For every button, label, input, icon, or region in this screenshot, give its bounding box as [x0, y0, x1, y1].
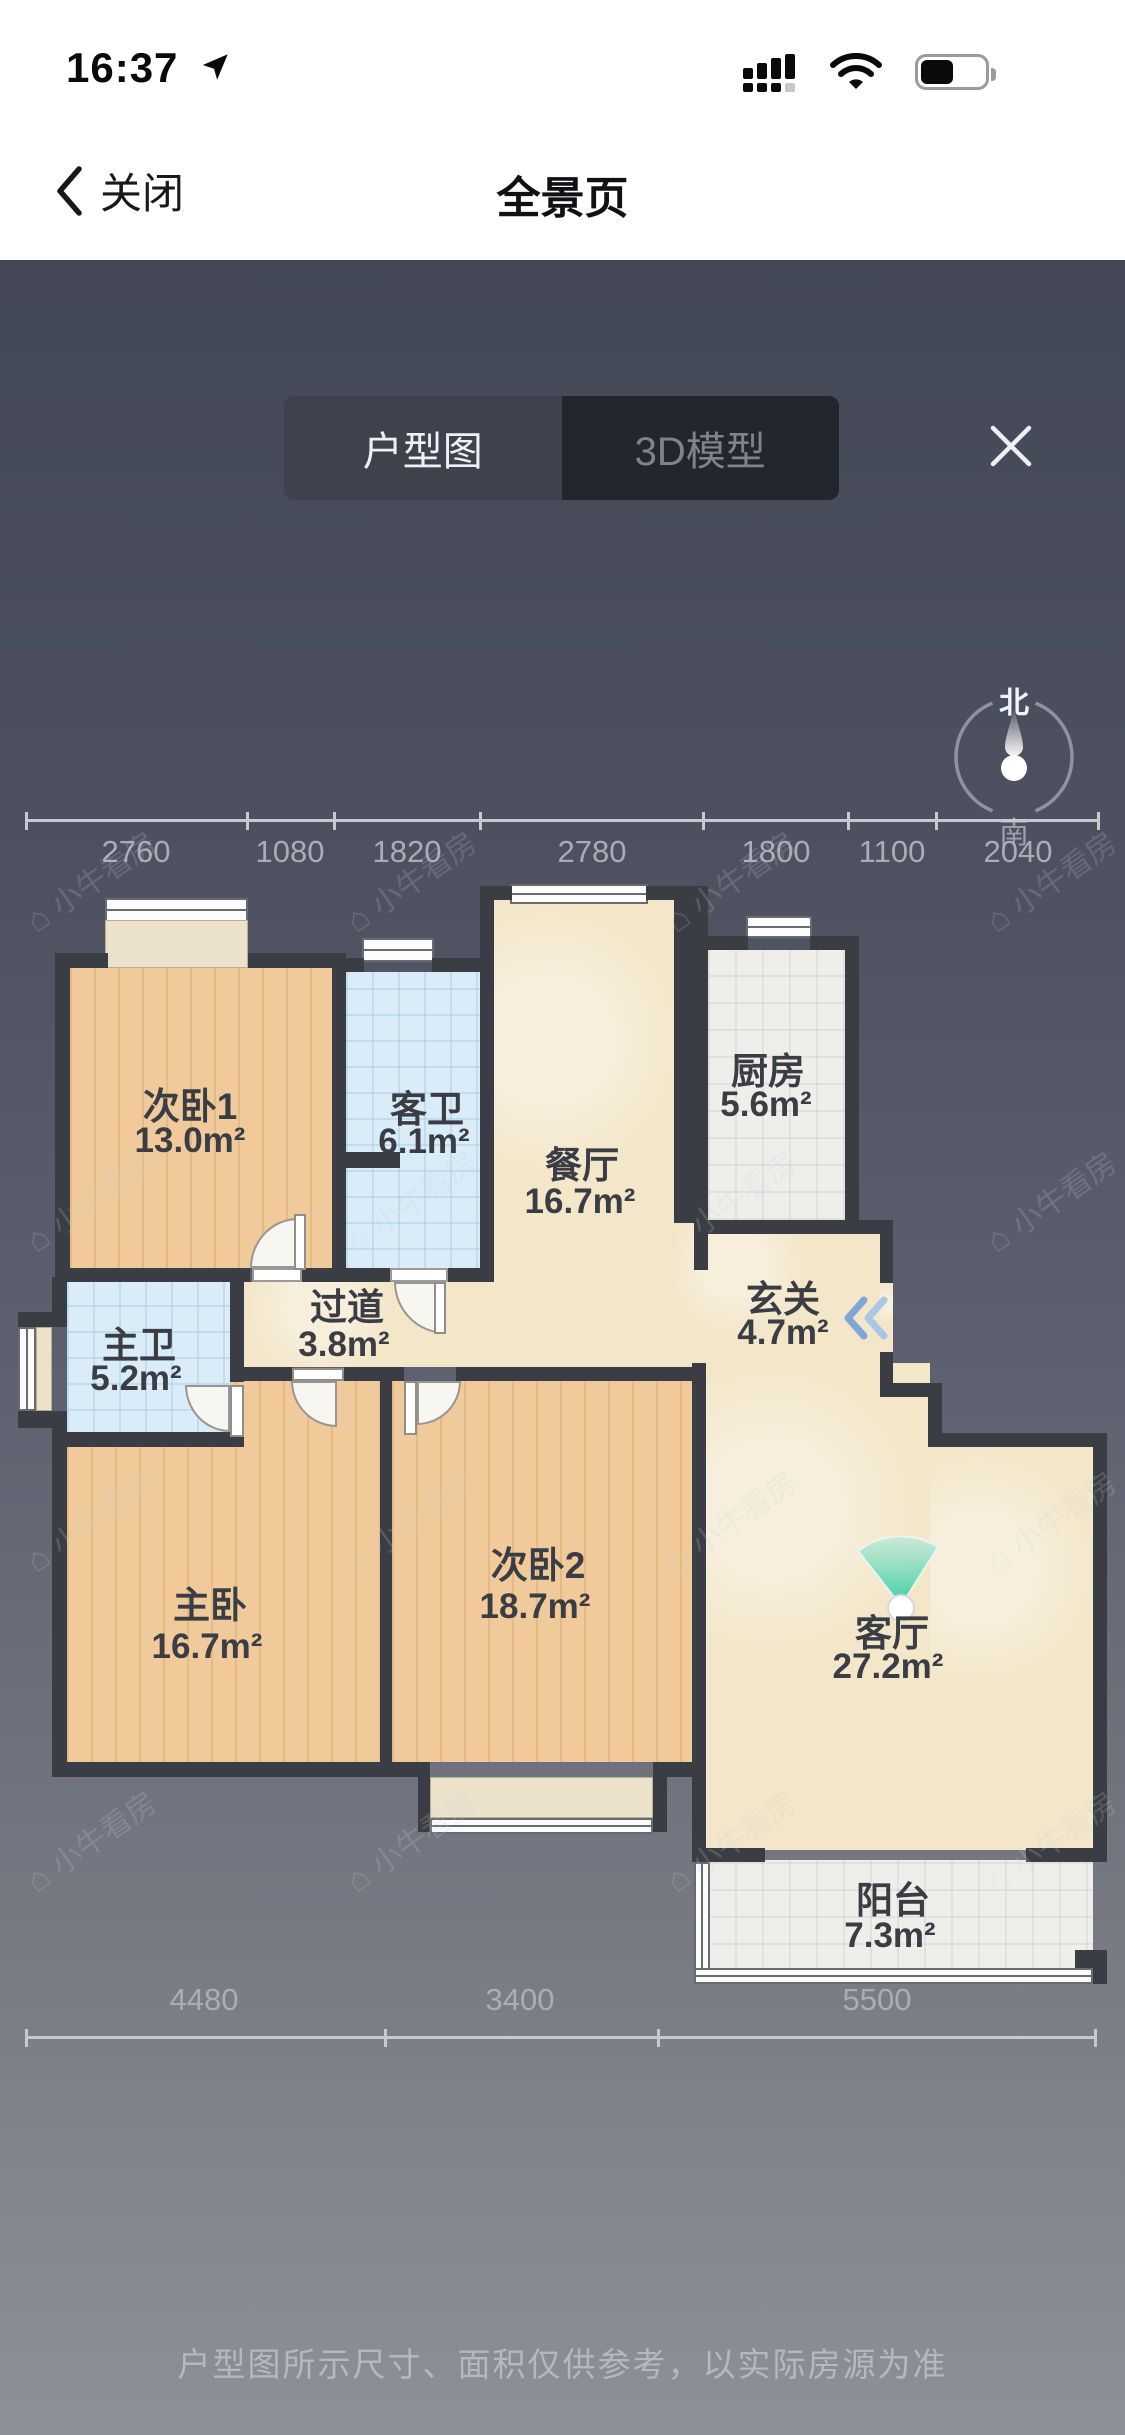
- room-living-floor: [930, 1447, 1093, 1850]
- clock: 16:37: [66, 44, 178, 92]
- wall: [494, 886, 512, 900]
- wall: [928, 1433, 1107, 1447]
- room-dining-floor: [494, 900, 674, 1367]
- wall: [694, 1848, 765, 1862]
- entry-direction-icon: [844, 1296, 892, 1345]
- door-leaf: [230, 1385, 244, 1437]
- room-area-guest-bath: 6.1m²: [378, 1122, 469, 1162]
- wall: [55, 953, 108, 968]
- room-area-bedroom2: 18.7m²: [480, 1587, 591, 1627]
- balcony-glass-wall: [694, 1862, 710, 1972]
- wall: [845, 936, 859, 1234]
- door-leaf: [294, 1214, 306, 1270]
- dim-tick: [935, 812, 938, 830]
- room-label-bedroom2: 次卧2: [491, 1535, 586, 1589]
- wall: [653, 1762, 667, 1832]
- wall: [646, 886, 674, 900]
- room-label-corridor: 过道: [310, 1277, 384, 1331]
- window: [430, 1818, 653, 1834]
- dim-label: 1820: [373, 834, 442, 870]
- wall: [344, 1367, 404, 1381]
- door-threshold: [390, 1268, 448, 1282]
- wall: [694, 1234, 708, 1270]
- close-overlay-button[interactable]: [985, 420, 1037, 472]
- window: [510, 884, 648, 904]
- dim-tick: [25, 812, 28, 830]
- wall: [18, 1312, 52, 1327]
- floorplan-viewer: 户型图 3D模型 北 南 2760 1080 1820: [0, 260, 1125, 2435]
- compass-north-label: 北: [944, 678, 1084, 722]
- dim-label: 1100: [859, 834, 926, 870]
- room-area-bedroom1: 13.0m²: [135, 1121, 246, 1161]
- wall: [480, 886, 494, 1276]
- tab-3d-model[interactable]: 3D模型: [562, 396, 840, 500]
- wall: [418, 1762, 430, 1832]
- dim-label: 1800: [742, 834, 811, 870]
- window-sill: [430, 1777, 653, 1818]
- room-label-master: 主卧: [173, 1575, 247, 1629]
- dimension-line-top: [25, 819, 1100, 822]
- wall: [456, 1367, 705, 1381]
- watermark: 小牛看房: [976, 1139, 1124, 1261]
- wall: [880, 1234, 893, 1283]
- wall: [52, 1432, 244, 1447]
- dim-tick: [25, 2029, 28, 2047]
- dim-tick: [847, 812, 850, 830]
- wall: [55, 953, 70, 1282]
- window-sill: [36, 1327, 52, 1411]
- dim-tick: [1097, 812, 1100, 830]
- room-area-balcony: 7.3m²: [844, 1916, 935, 1956]
- wall: [880, 1383, 942, 1397]
- door-leaf: [404, 1381, 417, 1435]
- wall: [332, 953, 346, 1282]
- wall: [346, 958, 364, 972]
- dim-tick: [384, 2029, 387, 2047]
- window: [746, 916, 812, 938]
- wall: [380, 1381, 392, 1762]
- close-icon: [985, 420, 1037, 472]
- nav-bar: 关闭 全景页: [0, 132, 1125, 260]
- dim-label: 5500: [843, 1982, 912, 2018]
- room-area-master-bath: 5.2m²: [90, 1359, 181, 1399]
- cellular-signal-icon: [743, 54, 807, 92]
- wall: [1026, 1848, 1107, 1862]
- status-bar: 16:37: [0, 0, 1125, 132]
- wall: [1093, 1433, 1107, 1862]
- wall: [52, 1437, 67, 1777]
- dim-label: 2780: [558, 834, 627, 870]
- battery-icon: [915, 54, 989, 90]
- room-label-dining: 餐厅: [545, 1135, 619, 1189]
- window: [105, 898, 248, 922]
- window: [362, 938, 434, 962]
- wifi-icon: [829, 52, 883, 97]
- view-mode-tabs: 户型图 3D模型: [284, 396, 839, 500]
- room-area-living: 27.2m²: [833, 1647, 944, 1687]
- wall: [692, 1363, 706, 1862]
- dimension-line-bottom: [25, 2036, 1097, 2039]
- room-area-dining: 16.7m²: [525, 1182, 636, 1222]
- door-leaf: [292, 1368, 344, 1381]
- dim-label: 3400: [486, 1982, 555, 2018]
- dim-tick: [657, 2029, 660, 2047]
- dim-label: 2040: [984, 834, 1053, 870]
- dim-tick: [246, 812, 249, 830]
- wall: [230, 1367, 292, 1381]
- wall: [18, 1411, 52, 1428]
- disclaimer-text: 户型图所示尺寸、面积仅供参考，以实际房源为准: [0, 2338, 1125, 2386]
- room-area-kitchen: 5.6m²: [720, 1085, 811, 1125]
- wall: [448, 1268, 494, 1282]
- door-threshold: [252, 1268, 302, 1282]
- window-sill: [105, 920, 248, 968]
- dim-tick: [479, 812, 482, 830]
- wall: [52, 1277, 67, 1327]
- room-area-entry: 4.7m²: [737, 1313, 828, 1353]
- watermark: 小牛看房: [16, 1779, 164, 1901]
- dim-tick: [1094, 2029, 1097, 2047]
- wall: [694, 1220, 893, 1234]
- tab-floorplan[interactable]: 户型图: [284, 396, 562, 500]
- window: [18, 1327, 36, 1411]
- wall: [694, 936, 748, 950]
- room-area-master: 16.7m²: [152, 1627, 263, 1667]
- dim-label: 4480: [170, 1982, 239, 2018]
- dim-tick: [333, 812, 336, 830]
- room-area-corridor: 3.8m²: [298, 1325, 389, 1365]
- dim-label: 2760: [102, 834, 171, 870]
- wall: [55, 1268, 250, 1282]
- location-arrow-icon: [198, 50, 232, 89]
- dim-tick: [702, 812, 705, 830]
- wall: [52, 1762, 430, 1777]
- page-title: 全景页: [0, 162, 1125, 226]
- wall: [432, 958, 480, 972]
- door-leaf: [434, 1282, 446, 1334]
- dim-label: 1080: [256, 834, 325, 870]
